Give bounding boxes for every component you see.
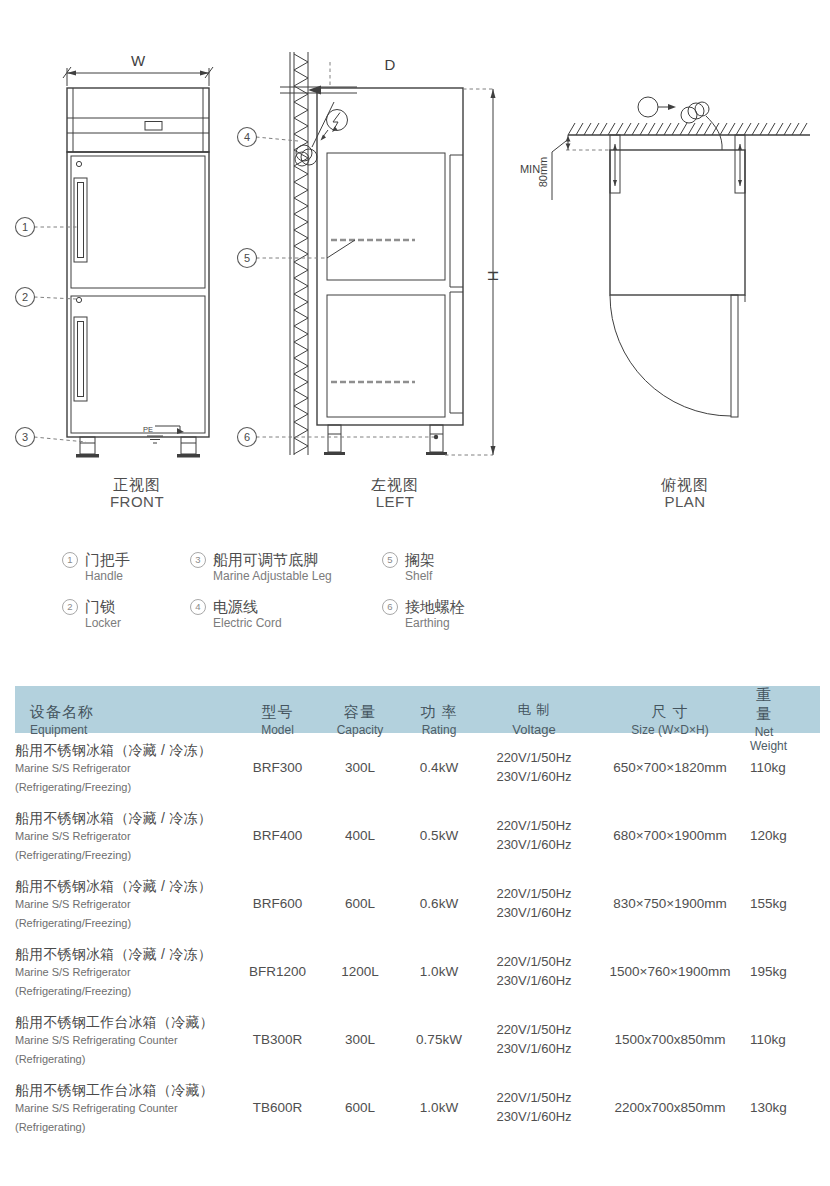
equipment-name-en: Marine S/S Refrigerator [15,898,235,910]
legend-item-earthing: 6 接地螺栓 Earthing [382,597,465,631]
legend-cn-handle: 门把手 [85,550,130,569]
cell-size: 1500x700x850mm [590,1032,750,1047]
header-rating: 功 率 Rating [400,703,478,737]
equipment-name-cn: 船用不锈钢冰箱（冷藏 / 冷冻） [15,810,235,828]
header-capacity: 容量 Capacity [320,703,400,737]
legend-num-2: 2 [62,599,78,615]
table-row: 船用不锈钢冰箱（冷藏 / 冷冻） Marine S/S Refrigerator… [15,869,820,937]
equipment-name-en: Marine S/S Refrigerator [15,966,235,978]
legend-cn-locker: 门锁 [85,597,121,616]
equipment-name-sub: (Refrigerating/Freezing) [15,849,235,861]
cell-size: 2200x700x850mm [590,1100,750,1115]
equipment-name-en: Marine S/S Refrigerator [15,830,235,842]
header-equipment: 设备名称 Equipment [15,703,235,737]
left-cabinet: D [280,56,463,455]
spec-table: 设备名称 Equipment 型号 Model 容量 Capacity 功 率 … [15,686,820,1141]
cell-weight: 195kg [750,964,820,979]
callout-4-number: 4 [244,131,250,143]
header-voltage-cn: 电 制 [478,700,590,719]
plan-label-cn: 俯视图 [605,476,765,493]
cell-capacity: 300L [320,1032,400,1047]
cell-voltage: 220V/1/50Hz 230V/1/60Hz [478,748,590,786]
cell-equipment: 船用不锈钢冰箱（冷藏 / 冷冻） Marine S/S Refrigerator… [15,742,235,793]
legend-num-5: 5 [382,552,398,568]
header-weight-en: Net Weight [750,725,778,753]
header-weight: 重 量 Net Weight [750,686,820,753]
cell-size: 650×700×1820mm [590,760,750,775]
equipment-name-sub: (Refrigerating) [15,1121,235,1133]
left-view-front-leg [324,425,345,455]
lower-door-handle [74,317,87,401]
cell-equipment: 船用不锈钢冰箱（冷藏 / 冷冻） Marine S/S Refrigerator… [15,946,235,997]
header-size-en: Size (W×D×H) [590,723,750,737]
equipment-name-en: Marine S/S Refrigerating Counter [15,1102,235,1114]
voltage-line-2: 230V/1/60Hz [478,1107,590,1126]
door-swing-arc [610,295,731,416]
header-voltage-en: Voltage [478,720,590,739]
gap-80mm-label: 80mm [537,157,549,188]
legend-column-3: 5 搁架 Shelf 6 接地螺栓 Earthing [382,550,465,644]
voltage-line-1: 220V/1/50Hz [478,816,590,835]
equipment-name-cn: 船用不锈钢冰箱（冷藏 / 冷冻） [15,742,235,760]
w-dim-label: W [131,52,146,69]
cell-model: BFR1200 [235,964,320,979]
legend-en-leg: Marine Adjustable Leg [213,569,332,584]
header-model-en: Model [235,723,320,737]
legend-en-handle: Handle [85,569,130,584]
cell-weight: 110kg [750,1032,820,1047]
cell-model: TB600R [235,1100,320,1115]
cell-equipment: 船用不锈钢冰箱（冷藏 / 冷冻） Marine S/S Refrigerator… [15,810,235,861]
wall-hatch-marks [568,123,807,135]
vent-badge [145,122,162,131]
header-size: 尺 寸 Size (W×D×H) [590,703,750,737]
header-weight-cn: 重 量 [750,686,778,724]
voltage-line-2: 230V/1/60Hz [478,1039,590,1058]
table-row: 船用不锈钢冰箱（冷藏 / 冷冻） Marine S/S Refrigerator… [15,801,820,869]
cell-rating: 0.6kW [400,896,478,911]
cell-rating: 1.0kW [400,964,478,979]
cell-equipment: 船用不锈钢冰箱（冷藏 / 冷冻） Marine S/S Refrigerator… [15,878,235,929]
door-slabs [450,155,463,413]
h-dim-label: H [485,271,502,282]
cell-model: BRF400 [235,828,320,843]
cell-rating: 0.75kW [400,1032,478,1047]
legend-item-handle: 1 门把手 Handle [62,550,130,584]
electric-plug-symbol [321,110,348,141]
upper-door-lock [76,161,81,166]
legend-cn-cord: 电源线 [213,597,282,616]
table-row: 船用不锈钢工作台冰箱（冷藏） Marine S/S Refrigerating … [15,1005,820,1073]
equipment-name-sub: (Refrigerating) [15,1053,235,1065]
cell-capacity: 1200L [320,964,400,979]
upper-compartment [327,153,445,280]
cell-equipment: 船用不锈钢工作台冰箱（冷藏） Marine S/S Refrigerating … [15,1014,235,1065]
legend-item-cord: 4 电源线 Electric Cord [190,597,332,631]
cell-capacity: 600L [320,896,400,911]
cell-rating: 1.0kW [400,1100,478,1115]
header-capacity-en: Capacity [320,723,400,737]
cell-model: TB300R [235,1032,320,1047]
legend-column-1: 1 门把手 Handle 2 门锁 Locker [62,550,130,644]
legend-en-locker: Locker [85,616,121,631]
cell-capacity: 300L [320,760,400,775]
upper-door-handle [74,178,87,262]
front-left-leg [76,437,99,458]
min-gap-dimension: MIN 80mm [520,135,610,200]
wall-hatch [294,54,308,454]
plan-label-en: PLAN [605,493,765,510]
plan-view-label: 俯视图 PLAN [605,476,765,510]
legend-num-4: 4 [190,599,206,615]
right-hinge-bracket [735,135,745,193]
wall-section [290,52,308,455]
callout-4: 4 [238,128,299,147]
legend-en-shelf: Shelf [405,569,435,584]
equipment-name-cn: 船用不锈钢冰箱（冷藏 / 冷冻） [15,878,235,896]
equipment-name-en: Marine S/S Refrigerating Counter [15,1034,235,1046]
legend-num-3: 3 [190,552,206,568]
upper-door [71,156,205,288]
cell-voltage: 220V/1/50Hz 230V/1/60Hz [478,1020,590,1058]
front-view-drawing: W [0,40,240,485]
voltage-line-2: 230V/1/60Hz [478,835,590,854]
voltage-line-1: 220V/1/50Hz [478,1020,590,1039]
callout-5: 5 [238,249,328,268]
left-label-cn: 左视图 [315,476,475,493]
cell-weight: 120kg [750,828,820,843]
open-door [610,295,745,417]
table-row: 船用不锈钢冰箱（冷藏 / 冷冻） Marine S/S Refrigerator… [15,937,820,1005]
cell-voltage: 220V/1/50Hz 230V/1/60Hz [478,884,590,922]
callout-5-number: 5 [244,252,250,264]
cord-coil [295,102,334,166]
cell-voltage: 220V/1/50Hz 230V/1/60Hz [478,1088,590,1126]
legend-cn-shelf: 搁架 [405,550,435,569]
cell-capacity: 400L [320,828,400,843]
cell-voltage: 220V/1/50Hz 230V/1/60Hz [478,816,590,854]
equipment-name-en: Marine S/S Refrigerator [15,762,235,774]
header-equipment-cn: 设备名称 [30,703,235,722]
header-model: 型号 Model [235,703,320,737]
catalog-page: W [0,0,830,1186]
cell-rating: 0.4kW [400,760,478,775]
legend-item-shelf: 5 搁架 Shelf [382,550,465,584]
table-row: 船用不锈钢冰箱（冷藏 / 冷冻） Marine S/S Refrigerator… [15,733,820,801]
voltage-line-2: 230V/1/60Hz [478,903,590,922]
header-capacity-cn: 容量 [320,703,400,722]
cell-size: 1500×760×1900mm [590,964,750,979]
voltage-line-2: 230V/1/60Hz [478,767,590,786]
cell-weight: 155kg [750,896,820,911]
callout-6-number: 6 [244,431,250,443]
legend-num-6: 6 [382,599,398,615]
front-view-label: 正视图 FRONT [57,476,217,510]
plan-cabinet [610,135,745,417]
cell-model: BRF300 [235,760,320,775]
mount-bracket [280,86,357,95]
pe-label: PE [143,425,153,434]
left-view-drawing: D [230,40,510,485]
callout-3-number: 3 [22,431,28,443]
equipment-name-cn: 船用不锈钢工作台冰箱（冷藏） [15,1082,235,1100]
plan-plug-and-cord [638,97,722,150]
legend-item-leg: 3 船用可调节底脚 Marine Adjustable Leg [190,550,332,584]
equipment-name-cn: 船用不锈钢冰箱（冷藏 / 冷冻） [15,946,235,964]
legend-num-1: 1 [62,552,78,568]
lower-compartment [327,295,445,417]
cell-weight: 110kg [750,760,820,775]
left-view-label: 左视图 LEFT [315,476,475,510]
cell-capacity: 600L [320,1100,400,1115]
spec-table-header: 设备名称 Equipment 型号 Model 容量 Capacity 功 率 … [15,686,820,733]
legend-cn-earthing: 接地螺栓 [405,597,465,616]
legend-en-cord: Electric Cord [213,616,282,631]
header-rating-cn: 功 率 [400,703,478,722]
callout-1: 1 [16,218,79,237]
lower-door-lock [76,297,81,302]
voltage-line-1: 220V/1/50Hz [478,952,590,971]
legend-item-locker: 2 门锁 Locker [62,597,130,631]
cell-model: BRF600 [235,896,320,911]
callout-6: 6 [238,428,439,447]
left-label-en: LEFT [315,493,475,510]
cell-voltage: 220V/1/50Hz 230V/1/60Hz [478,952,590,990]
plan-view-drawing: MIN 80mm [510,60,830,480]
voltage-line-2: 230V/1/60Hz [478,971,590,990]
equipment-name-cn: 船用不锈钢工作台冰箱（冷藏） [15,1014,235,1032]
equipment-name-sub: (Refrigerating/Freezing) [15,781,235,793]
equipment-name-sub: (Refrigerating/Freezing) [15,985,235,997]
cell-rating: 0.5kW [400,828,478,843]
voltage-line-1: 220V/1/50Hz [478,1088,590,1107]
plan-wall [568,123,810,135]
d-dim-label: D [385,56,396,73]
legend-en-earthing: Earthing [405,616,465,631]
front-right-leg [177,437,200,458]
legend-column-2: 3 船用可调节底脚 Marine Adjustable Leg 4 电源线 El… [190,550,332,644]
spec-table-body: 船用不锈钢冰箱（冷藏 / 冷冻） Marine S/S Refrigerator… [15,733,820,1141]
front-label-en: FRONT [57,493,217,510]
cell-equipment: 船用不锈钢工作台冰箱（冷藏） Marine S/S Refrigerating … [15,1082,235,1133]
cell-size: 830×750×1900mm [590,896,750,911]
lower-door [71,296,205,433]
header-model-cn: 型号 [235,703,320,722]
voltage-line-1: 220V/1/50Hz [478,884,590,903]
h-dimension: H [445,89,502,455]
w-dimension: W [63,52,213,86]
left-hinge-bracket [610,135,620,193]
callout-1-number: 1 [22,221,28,233]
front-cabinet: PE [67,88,209,458]
left-view-rear-leg [426,425,447,455]
header-rating-en: Rating [400,723,478,737]
header-voltage: 电 制 Voltage [478,700,590,739]
cell-size: 680×700×1900mm [590,828,750,843]
pe-ground-symbol: PE [143,425,184,443]
cell-weight: 130kg [750,1100,820,1115]
legend-cn-leg: 船用可调节底脚 [213,550,332,569]
header-equipment-en: Equipment [30,723,235,737]
table-row: 船用不锈钢工作台冰箱（冷藏） Marine S/S Refrigerating … [15,1073,820,1141]
callout-2-number: 2 [22,291,28,303]
front-label-cn: 正视图 [57,476,217,493]
equipment-name-sub: (Refrigerating/Freezing) [15,917,235,929]
header-size-cn: 尺 寸 [590,703,750,722]
voltage-line-1: 220V/1/50Hz [478,748,590,767]
